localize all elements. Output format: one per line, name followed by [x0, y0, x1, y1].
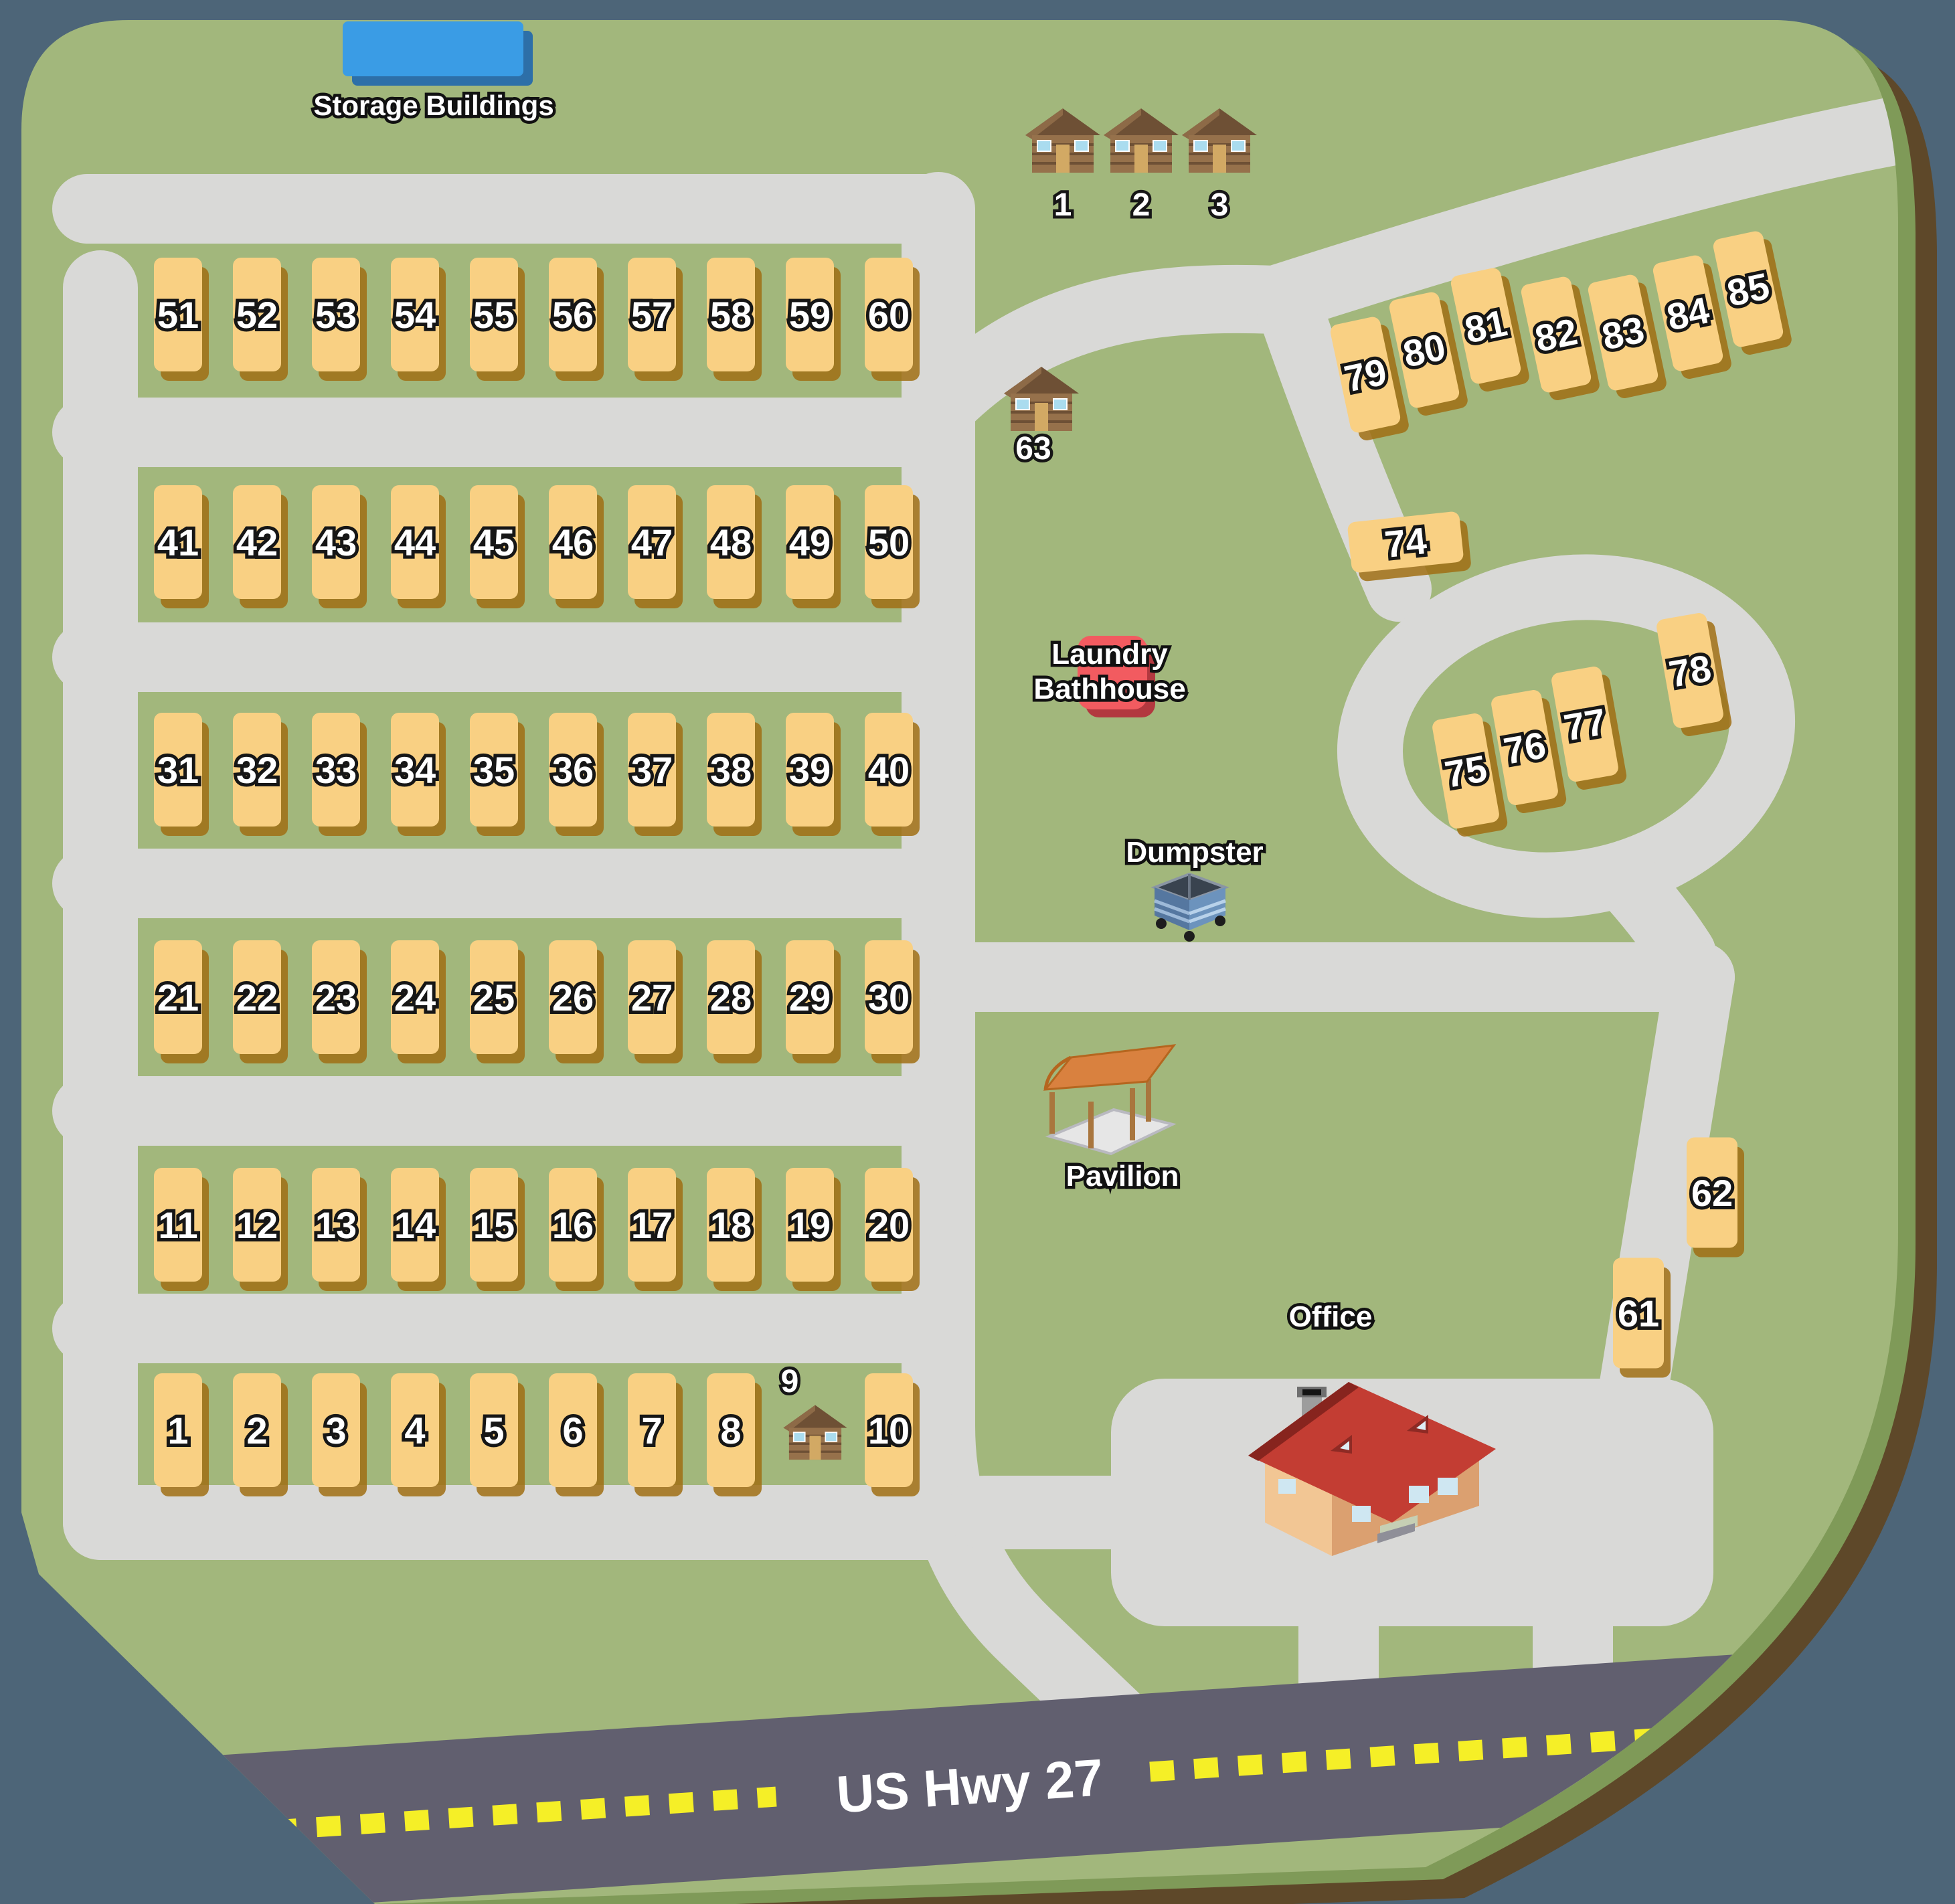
site-number: 46 — [552, 521, 594, 564]
rv-site-60: 60 — [865, 258, 920, 381]
site-number: 39 — [789, 749, 831, 791]
laundry-bathhouse: Laundry Bathhouse — [1033, 636, 1185, 717]
site-number: 61 — [1618, 1292, 1659, 1334]
rv-site-14: 14 — [391, 1168, 446, 1291]
rv-site-23: 23 — [312, 940, 367, 1063]
rv-site-29: 29 — [786, 940, 841, 1063]
site-number: 16 — [552, 1204, 594, 1246]
rv-site-21: 21 — [154, 940, 209, 1063]
site-number: 47 — [631, 521, 673, 564]
site-number: 56 — [552, 294, 594, 336]
rv-site-34: 34 — [391, 713, 446, 836]
cabin-number: 1 — [1054, 187, 1072, 223]
site-number: 75 — [1442, 747, 1490, 796]
rv-site-40: 40 — [865, 713, 920, 836]
site-number: 49 — [789, 521, 831, 564]
rv-site-59: 59 — [786, 258, 841, 381]
site-number: 37 — [631, 749, 673, 791]
rv-site-46: 46 — [549, 485, 604, 608]
cabin-number: 2 — [1132, 187, 1151, 223]
site-number: 26 — [552, 976, 594, 1019]
rv-site-55: 55 — [470, 258, 525, 381]
site-number: 55 — [473, 294, 515, 336]
rv-site-24: 24 — [391, 940, 446, 1063]
rv-site-25: 25 — [470, 940, 525, 1063]
rv-site-12: 12 — [233, 1168, 288, 1291]
laundry-label-line1: Laundry — [1051, 638, 1168, 671]
site-number: 4 — [404, 1409, 425, 1452]
rv-site-11: 11 — [154, 1168, 209, 1291]
site-number: 31 — [157, 749, 199, 791]
rv-site-39: 39 — [786, 713, 841, 836]
site-number: 18 — [710, 1204, 752, 1246]
storage-building-icon — [343, 21, 523, 76]
site-number: 27 — [631, 976, 673, 1019]
site-number: 12 — [236, 1204, 278, 1246]
site-number: 48 — [710, 521, 752, 564]
site-number: 78 — [1666, 646, 1714, 695]
site-number: 29 — [789, 976, 831, 1019]
site-number: 15 — [473, 1204, 515, 1246]
site-number: 62 — [1691, 1172, 1733, 1214]
site-number: 42 — [236, 521, 278, 564]
rv-site-4: 4 — [391, 1373, 446, 1496]
rv-site-36: 36 — [549, 713, 604, 836]
rv-site-43: 43 — [312, 485, 367, 608]
rv-site-17: 17 — [628, 1168, 683, 1291]
storage-label: Storage Buildings — [313, 90, 554, 121]
storage-buildings: Storage Buildings — [313, 21, 554, 121]
site-number: 21 — [157, 976, 199, 1019]
rv-site-2: 2 — [233, 1373, 288, 1496]
rv-site-48: 48 — [707, 485, 762, 608]
rv-site-49: 49 — [786, 485, 841, 608]
site-number: 59 — [789, 294, 831, 336]
site-number: 83 — [1598, 308, 1648, 358]
site-number: 82 — [1531, 310, 1581, 360]
rv-site-61: 61 — [1613, 1258, 1671, 1378]
site-number: 17 — [631, 1204, 673, 1246]
site-number: 34 — [394, 749, 436, 791]
rv-site-8: 8 — [707, 1373, 762, 1496]
rv-site-26: 26 — [549, 940, 604, 1063]
rv-site-51: 51 — [154, 258, 209, 381]
office-label: Office — [1289, 1300, 1373, 1333]
site-number: 1 — [167, 1409, 188, 1452]
rv-site-38: 38 — [707, 713, 762, 836]
rv-site-74: 74 — [1347, 510, 1471, 582]
site-number: 19 — [789, 1204, 831, 1246]
rv-site-6: 6 — [549, 1373, 604, 1496]
rv-site-15: 15 — [470, 1168, 525, 1291]
site-number: 22 — [236, 976, 278, 1019]
site-number: 50 — [868, 521, 910, 564]
site-number: 74 — [1383, 519, 1429, 566]
site-number: 58 — [710, 294, 752, 336]
site-number: 8 — [720, 1409, 741, 1452]
rv-site-13: 13 — [312, 1168, 367, 1291]
rv-site-54: 54 — [391, 258, 446, 381]
site-number: 36 — [552, 749, 594, 791]
site-number: 77 — [1561, 700, 1609, 749]
rv-site-50: 50 — [865, 485, 920, 608]
rv-site-16: 16 — [549, 1168, 604, 1291]
rv-site-58: 58 — [707, 258, 762, 381]
site-number: 14 — [394, 1204, 436, 1246]
site-number: 6 — [562, 1409, 583, 1452]
site-number: 25 — [473, 976, 515, 1019]
rv-site-37: 37 — [628, 713, 683, 836]
site-number: 52 — [236, 294, 278, 336]
rv-site-30: 30 — [865, 940, 920, 1063]
rv-site-10: 10 — [865, 1373, 920, 1496]
rv-site-41: 41 — [154, 485, 209, 608]
campground-map: US Hwy 27 515253545556575859604142434445… — [0, 0, 1955, 1904]
site-number: 7 — [641, 1409, 662, 1452]
site-number: 81 — [1461, 301, 1511, 351]
rv-site-7: 7 — [628, 1373, 683, 1496]
site-number: 53 — [315, 294, 357, 336]
site-number: 57 — [631, 294, 673, 336]
site-number: 23 — [315, 976, 357, 1019]
rv-site-35: 35 — [470, 713, 525, 836]
rv-site-62: 62 — [1687, 1138, 1744, 1258]
rv-site-57: 57 — [628, 258, 683, 381]
rv-site-5: 5 — [470, 1373, 525, 1496]
rv-site-47: 47 — [628, 485, 683, 608]
rv-site-53: 53 — [312, 258, 367, 381]
rv-site-3: 3 — [312, 1373, 367, 1496]
rv-site-18: 18 — [707, 1168, 762, 1291]
rv-site-44: 44 — [391, 485, 446, 608]
site-number: 20 — [868, 1204, 910, 1246]
site-number: 38 — [710, 749, 752, 791]
site-number: 5 — [483, 1409, 504, 1452]
rv-site-52: 52 — [233, 258, 288, 381]
rv-site-27: 27 — [628, 940, 683, 1063]
rv-site-19: 19 — [786, 1168, 841, 1291]
rv-site-31: 31 — [154, 713, 209, 836]
rv-site-28: 28 — [707, 940, 762, 1063]
site-number: 2 — [246, 1409, 267, 1452]
site-number: 85 — [1723, 264, 1773, 315]
site-number: 3 — [325, 1409, 346, 1452]
rv-site-45: 45 — [470, 485, 525, 608]
site-number: 24 — [394, 976, 436, 1019]
site-number: 60 — [868, 294, 910, 336]
site-number: 84 — [1663, 288, 1713, 339]
site-number: 76 — [1501, 723, 1549, 772]
laundry-label-line2: Bathhouse — [1033, 673, 1185, 705]
rv-site-1: 1 — [154, 1373, 209, 1496]
site-number: 40 — [868, 749, 910, 791]
dumpster-label: Dumpster — [1126, 836, 1263, 869]
site-number: 43 — [315, 521, 357, 564]
site-number: 51 — [157, 294, 199, 336]
site-number: 28 — [710, 976, 752, 1019]
site-number: 54 — [394, 294, 436, 336]
rv-site-33: 33 — [312, 713, 367, 836]
site-number: 11 — [158, 1204, 197, 1246]
site-number: 30 — [868, 976, 910, 1019]
cabin-number: 63 — [1015, 431, 1051, 466]
pavilion-label: Pavilion — [1066, 1160, 1179, 1193]
rv-site-56: 56 — [549, 258, 604, 381]
site-number: 79 — [1341, 350, 1390, 400]
rv-site-32: 32 — [233, 713, 288, 836]
site-number: 33 — [315, 749, 357, 791]
site-number: 32 — [236, 749, 278, 791]
site-number: 44 — [394, 521, 436, 564]
site-number: 45 — [473, 521, 515, 564]
site-number: 35 — [473, 749, 515, 791]
rv-site-22: 22 — [233, 940, 288, 1063]
site-number: 41 — [157, 521, 199, 564]
site-number: 13 — [315, 1204, 357, 1246]
rv-site-42: 42 — [233, 485, 288, 608]
cabin-number: 3 — [1211, 187, 1229, 223]
site-number: 80 — [1399, 325, 1449, 375]
rv-site-20: 20 — [865, 1168, 920, 1291]
cabin-number: 9 — [781, 1364, 799, 1399]
site-number: 10 — [868, 1409, 910, 1452]
